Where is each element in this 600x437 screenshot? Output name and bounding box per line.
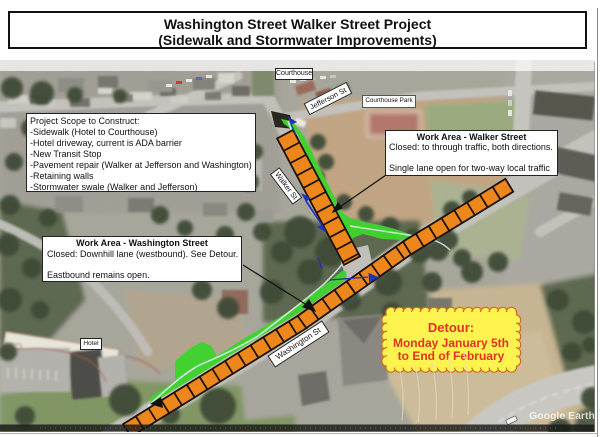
svg-text:Monday January 5th: Monday January 5th <box>393 336 509 350</box>
svg-text:Google Earth: Google Earth <box>529 410 595 422</box>
svg-text:to End of February: to End of February <box>398 349 505 363</box>
svg-text:Detour:: Detour: <box>428 320 474 335</box>
